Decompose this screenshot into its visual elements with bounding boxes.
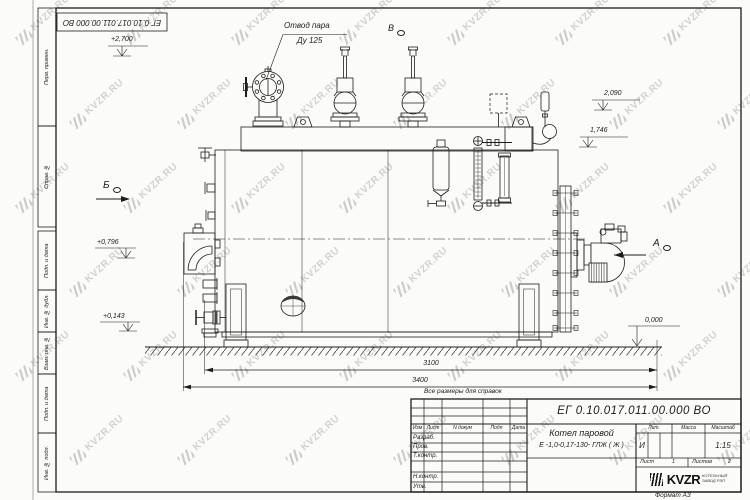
- sig-row-razrab: Разраб.: [413, 435, 435, 441]
- col-list: Лист: [424, 424, 442, 433]
- corner-stamp-designation: ЕГ 0.10.017.011.00.000 ВО: [57, 13, 167, 31]
- front-fittings: [198, 148, 216, 221]
- elevation-0000: 0,000: [645, 317, 663, 324]
- margin-label-sprav-no: Справ. №: [38, 126, 56, 227]
- burner: [571, 224, 627, 282]
- control-box: [505, 127, 533, 151]
- callout-steam-outlet-line1: Отвод пара: [284, 22, 330, 30]
- view-label-a: А: [653, 239, 660, 249]
- ground-hatch: [145, 347, 662, 356]
- product-model: Е -1,0-0,17-130- ГЛЖ ( Ж ): [527, 440, 636, 451]
- col-izm: Изм: [411, 424, 424, 433]
- lifting-lug: [512, 117, 530, 127]
- safety-valve-2: [399, 47, 427, 127]
- boiler-body: [193, 127, 586, 337]
- margin-label-podp-data-2: Подп. и дата: [38, 374, 56, 433]
- col-ndocum: N докум: [442, 424, 483, 433]
- dimension-3100: 3100: [205, 359, 657, 368]
- steam-outlet-valve: [244, 66, 284, 126]
- sensor-pocket: [541, 92, 549, 127]
- col-podp: Подп: [483, 424, 510, 433]
- dimension-3400: 3400: [183, 376, 657, 385]
- col-data: Дата: [510, 424, 527, 433]
- margin-label-perv-primen: Перв. примен.: [38, 8, 56, 126]
- rear-leg: [517, 284, 541, 347]
- company-logo: KVZR КОТЕЛЬНЫЙ ЗАВОД РЭП: [638, 467, 739, 491]
- view-scale-mark: [397, 30, 405, 36]
- sig-row-utv: Утв.: [413, 484, 427, 490]
- margin-label-vzam-inv: Взам. инв. №: [38, 332, 56, 374]
- sheet-label: Лист: [640, 460, 654, 466]
- sheet-number: 1: [672, 460, 675, 466]
- drawing-sheet: KVZR.RUKVZR.RUKVZR.RUKVZR.RUKVZR.RUKVZR.…: [0, 0, 750, 500]
- sig-row-nkontr: Н.контр.: [413, 474, 438, 480]
- mass-label: Масса: [672, 424, 705, 433]
- scale-value: 1:15: [705, 433, 741, 458]
- reference-note: Все размеры для справок: [424, 389, 502, 396]
- margin-label-inv-dubl: Инв. № дубл.: [38, 290, 56, 332]
- view-scale-mark: [113, 187, 121, 193]
- elevation-0796: +0,796: [97, 239, 119, 246]
- dim-3100: [205, 368, 657, 372]
- elevation-0143: +0,143: [103, 313, 125, 320]
- title-designation: ЕГ 0.10.017.011.00.000 ВО: [527, 399, 741, 424]
- blowdown-valve: [196, 310, 226, 337]
- front-leg: [224, 284, 248, 347]
- dimension-lines: [183, 242, 657, 391]
- logo-subtitle-2: ЗАВОД РЭП: [702, 479, 727, 484]
- siphon-tube: [533, 125, 557, 145]
- view-scale-mark: [663, 245, 671, 251]
- view-label-b: Б: [103, 181, 110, 191]
- safety-valve-1: [331, 47, 359, 127]
- manhole: [281, 296, 305, 316]
- elevation-2090: 2,090: [604, 90, 622, 97]
- margin-label-inv-podl: Инв. № подл.: [38, 433, 56, 492]
- elevation-marks: [95, 46, 680, 346]
- level-gauge: [474, 137, 513, 211]
- format-note: Формат А3: [655, 493, 691, 500]
- sig-row-tkontr: Т.контр.: [413, 453, 437, 459]
- lit-label: Лит.: [636, 424, 672, 433]
- elevation-2700: +2,700: [111, 36, 133, 43]
- scale-label: Масштаб: [705, 424, 741, 433]
- sheets-total: 2: [728, 460, 731, 466]
- lifting-lug: [294, 117, 312, 127]
- view-b-arrow: [96, 196, 130, 202]
- dim-3400: [183, 385, 657, 389]
- logo-coil-icon: [650, 473, 663, 486]
- product-name: Котел паровой: [527, 427, 636, 439]
- sheets-label: Листов: [692, 460, 712, 466]
- frame: [33, 0, 741, 500]
- pressure-gauge-outline: [490, 94, 507, 113]
- margin-label-podp-data-1: Подп. и дата: [38, 231, 56, 290]
- elevation-1746: 1,746: [590, 127, 608, 134]
- steam-drum: [241, 127, 532, 151]
- rear-flange: [553, 186, 578, 332]
- logo-text: KVZR: [667, 473, 700, 486]
- callout-steam-outlet-line2: Ду 125: [297, 37, 322, 45]
- lit-value: И: [636, 433, 648, 458]
- view-label-v: В: [388, 24, 394, 33]
- sig-row-prov: Пров.: [413, 444, 429, 450]
